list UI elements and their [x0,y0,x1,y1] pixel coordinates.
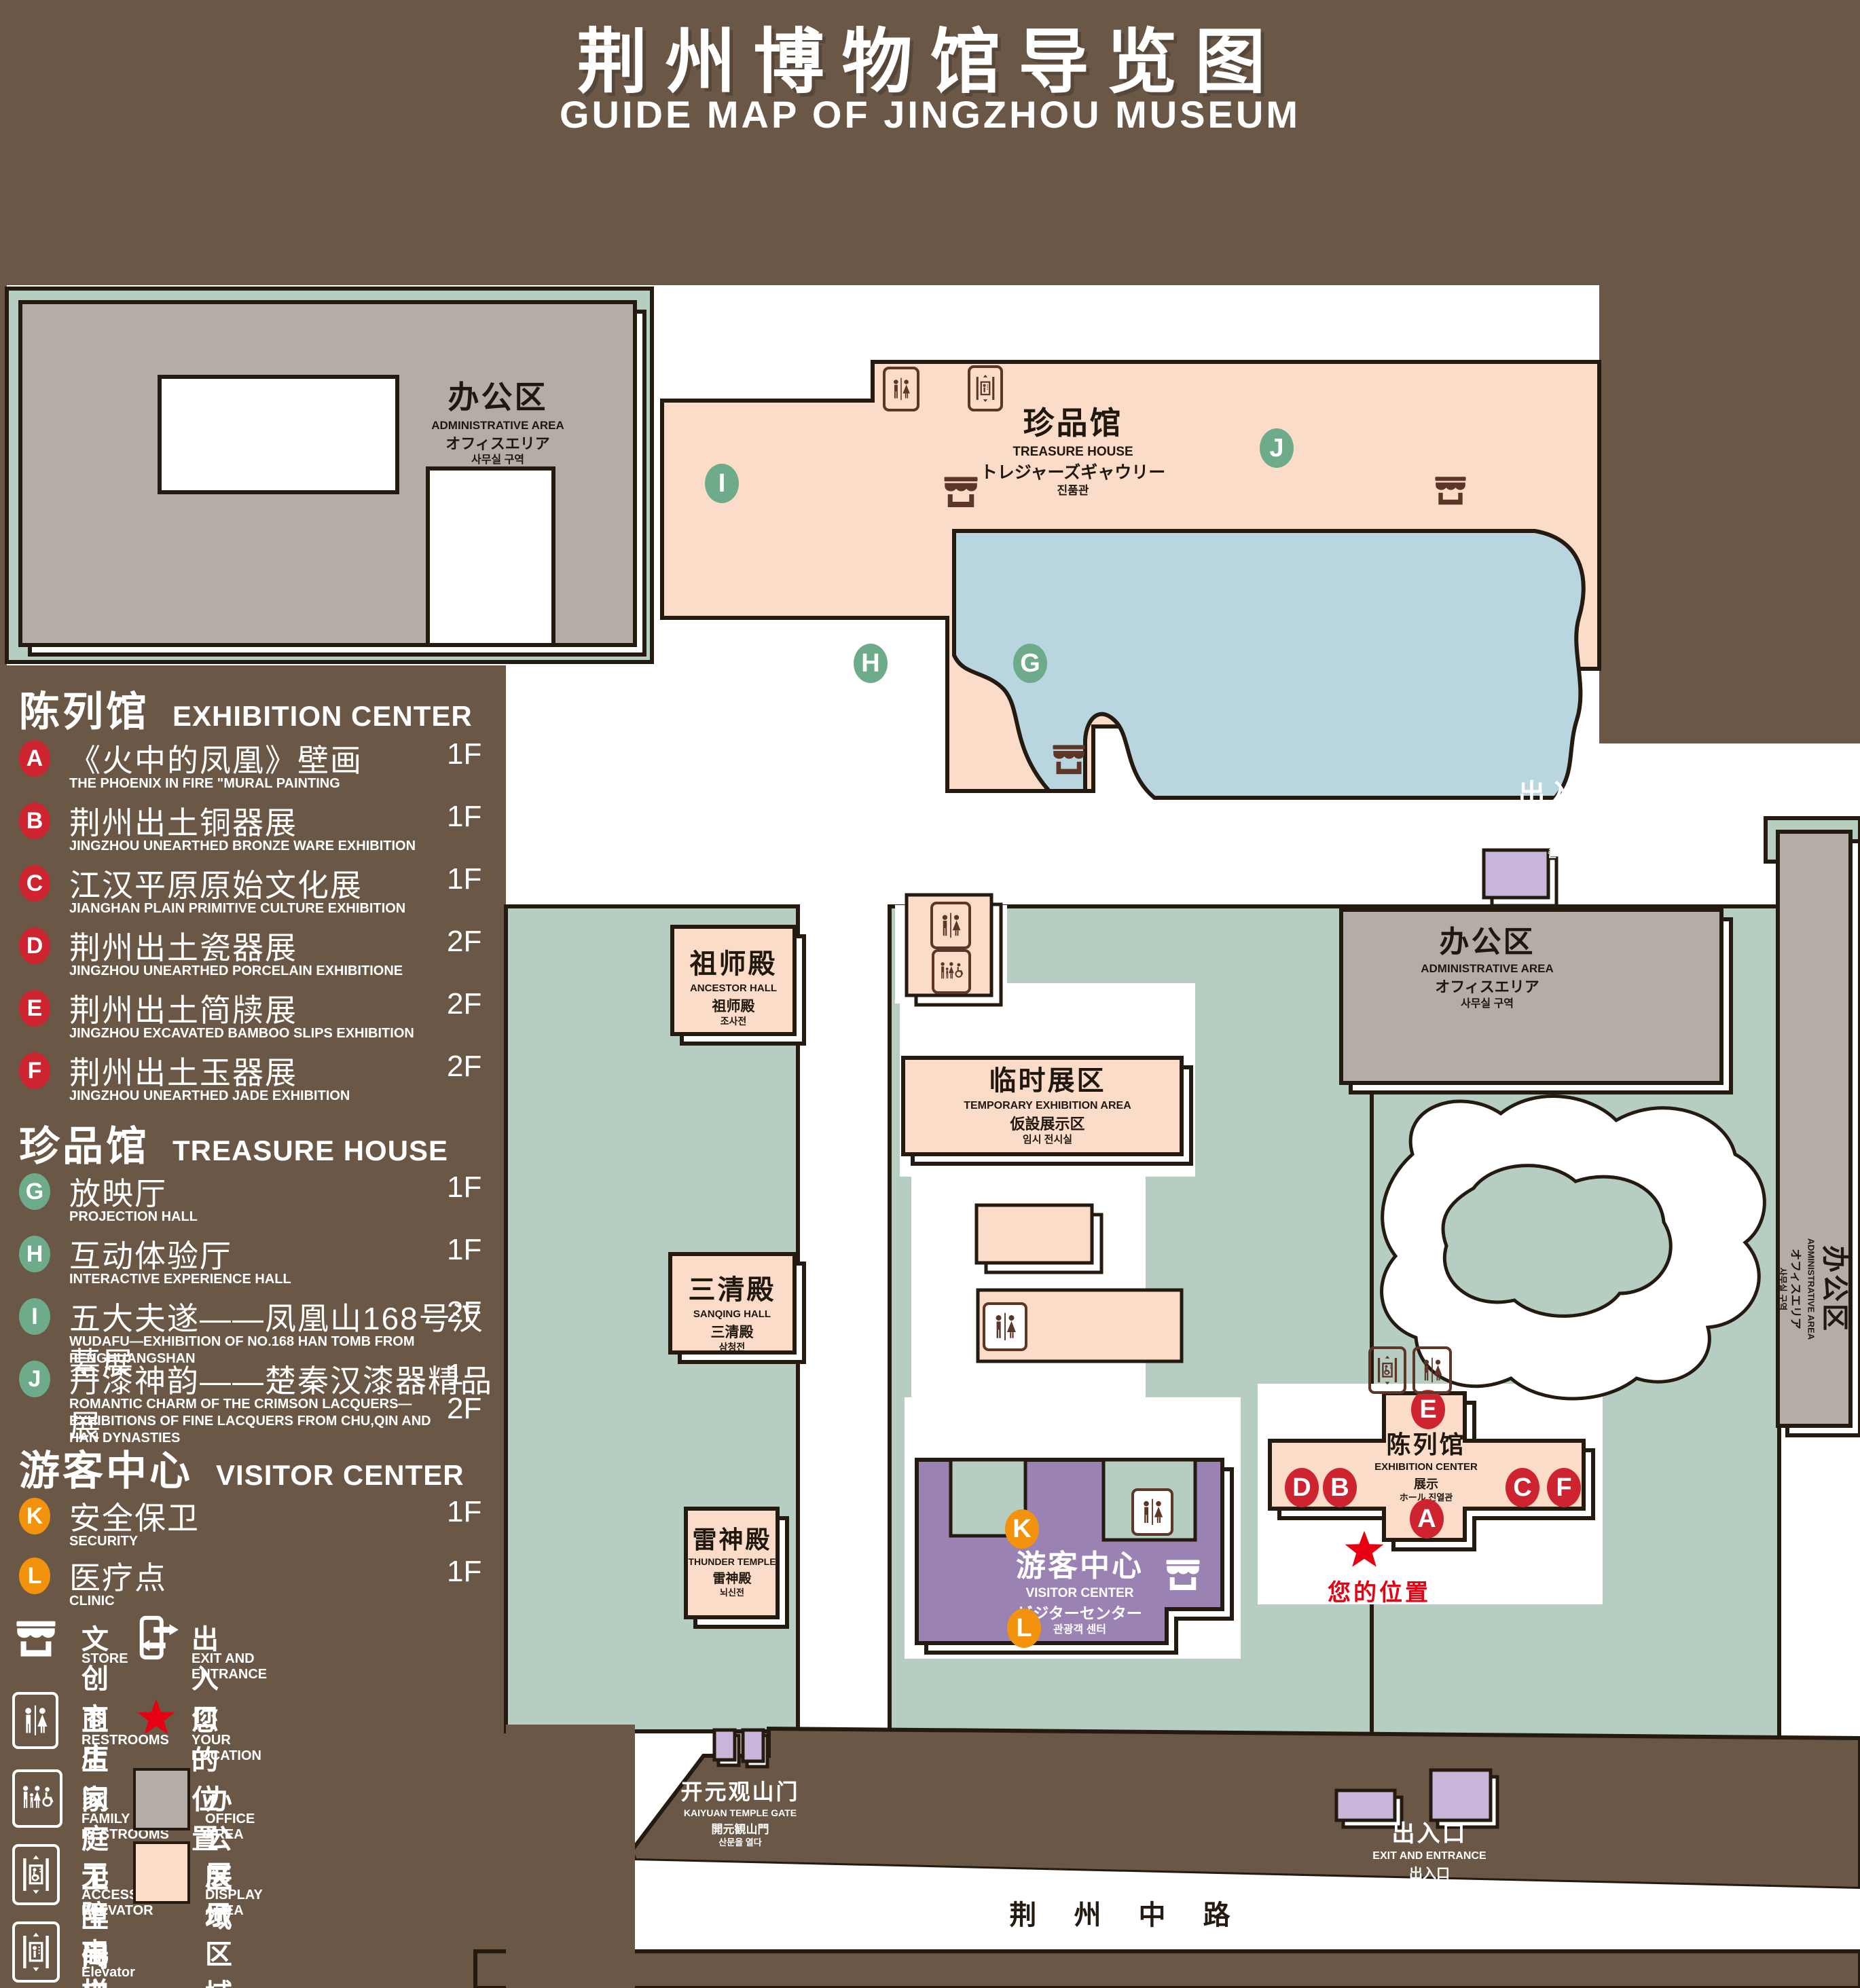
elevator-icon [968,365,1003,411]
exit-door-icon [1491,808,1535,850]
item-C-en: JIANGHAN PLAIN PRIMITIVE CULTURE EXHIBIT… [69,900,450,917]
legend-your-location-en: YOUR LOCATION [192,1733,261,1764]
sanqing-ja: 三清殿 [630,1325,834,1341]
restroom-icon [12,1692,58,1749]
badge-K: K [19,1498,50,1534]
item-B-en: JINGZHOU UNEARTHED BRONZE WARE EXHIBITIO… [69,838,450,855]
list-item-J: J 丹漆神韵——楚秦汉漆器精品展 ROMANTIC CHARM OF THE C… [19,1361,494,1429]
section-visitor-center-en: VISITOR CENTER [216,1459,464,1492]
admin-nw-zh: 办公区 [362,380,634,416]
label-sanqing-hall: 三清殿 SANQING HALL 三清殿 삼청전 [630,1275,834,1353]
item-G-floor: 1F [447,1171,481,1204]
store-icon [941,474,981,511]
item-J-floor: 1-2F [447,1358,494,1426]
marker-D: D [1285,1468,1319,1507]
badge-F: F [19,1052,50,1089]
store-icon [1163,1556,1203,1594]
item-K-zh: 安全保卫 [69,1494,200,1539]
gate-en: KAIYUAN TEMPLE GATE [635,1808,845,1819]
item-D-zh: 荆州出土瓷器展 [69,923,297,968]
thunder-en: THUNDER TEMPLE [630,1557,834,1568]
label-temporary-exhibition: 临时展区 TEMPORARY EXHIBITION AREA 仮設展示区 임시 … [907,1066,1188,1146]
item-H-zh: 互动体验厅 [69,1232,232,1276]
accessible-elevator-icon [12,1844,60,1905]
badge-D: D [19,927,50,964]
exh-center-zh: 陈列馆 [1324,1431,1528,1458]
item-E-zh: 荆州出土简牍展 [69,986,297,1031]
badge-E: E [19,990,50,1027]
marker-E: E [1411,1390,1445,1429]
list-item-D: D 荆州出土瓷器展 JINGZHOU UNEARTHED PORCELAIN E… [19,927,494,995]
item-H-floor: 1F [447,1233,481,1267]
badge-J: J [19,1361,50,1397]
item-L-zh: 医疗点 [69,1553,167,1598]
sanqing-ko: 삼청전 [630,1342,834,1353]
thunder-zh: 雷神殿 [630,1526,834,1553]
temp-exh-zh: 临时展区 [907,1066,1188,1097]
admin-east-ja: オフィスエリア [1351,979,1623,996]
exit-icon [133,1613,182,1662]
section-treasure-house: 珍品馆 TREASURE HOUSE [19,1113,448,1173]
badge-G: G [19,1173,50,1210]
marker-B: B [1323,1468,1357,1507]
restroom-icon [983,1302,1027,1351]
marker-G: G [1013,644,1047,683]
restroom-icon [1412,1346,1452,1394]
item-A-en: THE PHOENIX IN FIRE "MURAL PAINTING [69,775,450,792]
admin-nw-ja: オフィスエリア [362,436,634,453]
admin-far-east-en: ADMINISTRATIVE AREA [1806,1119,1816,1458]
thunder-ja: 雷神殿 [630,1572,834,1586]
label-thunder-temple: 雷神殿 THUNDER TEMPLE 雷神殿 뇌신전 [630,1526,834,1598]
thunder-ko: 뇌신전 [630,1588,834,1598]
admin-east-en: ADMINISTRATIVE AREA [1351,962,1623,975]
badge-B: B [19,803,50,839]
item-F-en: JINGZHOU UNEARTHED JADE EXHIBITION [69,1088,450,1105]
admin-east-ko: 사무실 구역 [1351,998,1623,1010]
marker-H: H [854,644,888,683]
badge-C: C [19,865,50,902]
item-B-floor: 1F [447,800,481,834]
family-restroom-icon [932,949,971,994]
badge-I: I [19,1298,50,1335]
gate-zh: 开元观山门 [635,1780,845,1805]
visitor-ja: ビジターセンター [944,1605,1216,1623]
exit-east-ko: 출입구 [1460,849,1664,860]
marker-F: F [1547,1468,1581,1507]
exit-east-en: EXIT AND ENTRANCE [1460,813,1664,826]
accessible-elevator-icon [1368,1346,1406,1394]
item-G-zh: 放映厅 [69,1169,167,1214]
legend-office-area-en: OFFICE AREA [205,1811,255,1843]
label-ancestor-hall: 祖师殿 ANCESTOR HALL 祖师殿 조사전 [632,949,835,1027]
list-item-C: C 江汉平原原始文化展 JIANGHAN PLAIN PRIMITIVE CUL… [19,865,494,933]
item-E-en: JINGZHOU EXCAVATED BAMBOO SLIPS EXHIBITI… [69,1025,450,1042]
ancestor-ja: 祖师殿 [632,999,835,1015]
item-A-floor: 1F [447,737,481,771]
item-D-floor: 2F [447,925,481,959]
section-treasure-house-zh: 珍品馆 [19,1113,149,1173]
marker-I: I [705,464,739,503]
visitor-ko: 관광객 센터 [944,1624,1216,1636]
treasure-en: TREASURE HOUSE [937,445,1209,459]
office-area-swatch [133,1768,190,1830]
your-location-star-icon [1343,1529,1385,1571]
section-exhibition-center-en: EXHIBITION CENTER [172,700,473,733]
sanqing-zh: 三清殿 [630,1275,834,1306]
item-H-en: INTERACTIVE EXPERIENCE HALL [69,1271,450,1288]
marker-J: J [1260,428,1294,468]
list-item-E: E 荆州出土简牍展 JINGZHOU EXCAVATED BAMBOO SLIP… [19,990,494,1058]
restroom-icon [930,902,971,949]
label-exit-east: 出入口 EXIT AND ENTRANCE 出入口 출입구 [1460,779,1664,860]
restroom-icon [883,367,919,411]
marker-L: L [1007,1608,1041,1648]
temp-exh-en: TEMPORARY EXHIBITION AREA [907,1100,1188,1112]
list-item-G: G 放映厅 PROJECTION HALL 1F [19,1173,494,1241]
legend-exit-en: EXIT AND ENTRANCE [192,1651,267,1682]
gate-ja: 開元観山門 [635,1823,845,1836]
restroom-icon [1131,1488,1173,1536]
exit-south-ko: 출입구 [1328,1883,1531,1894]
ancestor-zh: 祖师殿 [632,949,835,980]
admin-far-east-zh: 办公区 [1819,1119,1850,1458]
list-item-I: I 五大夫遂——凤凰山168号汉墓展 WUDAFU—EXHIBITION OF … [19,1298,494,1366]
list-item-B: B 荆州出土铜器展 JINGZHOU UNEARTHED BRONZE WARE… [19,803,494,870]
badge-H: H [19,1236,50,1272]
list-item-L: L 医疗点 CLINIC 1F [19,1558,494,1625]
item-L-floor: 1F [447,1555,481,1589]
label-admin-area-east: 办公区 ADMINISTRATIVE AREA オフィスエリア 사무실 구역 [1351,925,1623,1010]
family-restroom-icon [12,1769,62,1828]
sanqing-en: SANQING HALL [630,1309,834,1321]
legend-elevator-en: Elevator [81,1965,135,1981]
marker-K: K [1005,1509,1039,1549]
item-E-floor: 2F [447,987,481,1021]
admin-far-east-ko: 사무실 구역 [1777,1119,1787,1458]
item-D-en: JINGZHOU UNEARTHED PORCELAIN EXHIBITIONE [69,963,450,980]
location-star-icon [136,1697,177,1738]
page-subtitle: GUIDE MAP OF JINGZHOU MUSEUM [0,92,1860,136]
admin-east-zh: 办公区 [1351,925,1623,959]
exit-east-ja: 出入口 [1460,830,1664,847]
temp-exh-ko: 임시 전시실 [907,1135,1188,1146]
exit-east-zh: 出入口 [1460,779,1664,810]
temp-exh-ja: 仮設展示区 [907,1116,1188,1133]
section-treasure-house-en: TREASURE HOUSE [172,1135,448,1167]
item-B-zh: 荆州出土铜器展 [69,798,297,843]
item-I-floor: 2F [447,1295,481,1329]
guide-map-poster: 荆州博物馆导览图 GUIDE MAP OF JINGZHOU MUSEUM 办公… [0,0,1860,1988]
admin-nw-ko: 사무실 구역 [362,454,634,466]
item-K-floor: 1F [447,1495,481,1529]
elevator-icon [12,1921,60,1983]
exit-south-en: EXIT AND ENTRANCE [1328,1850,1531,1862]
label-admin-area-nw: 办公区 ADMINISTRATIVE AREA オフィスエリア 사무실 구역 [362,380,634,466]
item-F-zh: 荆州出土玉器展 [69,1048,297,1093]
item-K-en: SECURITY [69,1533,450,1550]
list-item-F: F 荆州出土玉器展 JINGZHOU UNEARTHED JADE EXHIBI… [19,1052,494,1120]
item-C-floor: 1F [447,862,481,896]
road-label: 荆 州 中 路 [937,1893,1317,1932]
section-exhibition-center: 陈列馆 EXHIBITION CENTER [19,679,473,738]
section-visitor-center: 游客中心 VISITOR CENTER [19,1438,464,1497]
item-C-zh: 江汉平原原始文化展 [69,861,363,906]
badge-L: L [19,1558,50,1594]
item-A-zh: 《火中的凤凰》壁画 [69,736,363,781]
store-icon [1049,742,1089,777]
your-location-label: 您的位置 [1328,1574,1431,1607]
marker-A: A [1410,1499,1444,1539]
section-exhibition-center-zh: 陈列馆 [19,679,149,738]
legend-store-en: STORE [81,1651,128,1667]
ancestor-ko: 조사전 [632,1016,835,1027]
admin-nw-en: ADMINISTRATIVE AREA [362,419,634,432]
label-exit-south: 出入口 EXIT AND ENTRANCE 出入口 출입구 [1328,1821,1531,1894]
label-kaiyuan-gate: 开元观山门 KAIYUAN TEMPLE GATE 開元観山門 산문을 열다 [635,1780,845,1847]
display-area-swatch [133,1841,190,1904]
list-item-A: A 《火中的凤凰》壁画 THE PHOENIX IN FIRE "MURAL P… [19,740,494,808]
item-F-floor: 2F [447,1050,481,1084]
item-G-en: PROJECTION HALL [69,1209,450,1226]
page-title: 荆州博物馆导览图 [0,4,1860,107]
badge-A: A [19,740,50,777]
label-admin-area-far-east: 办公区 ADMINISTRATIVE AREA オフィスエリア 사무실 구역 [1777,1119,1850,1458]
legend-display-area-zh: 展示区域 [205,1854,234,1988]
exit-south-zh: 出入口 [1328,1821,1531,1847]
marker-C: C [1506,1468,1539,1507]
section-visitor-center-zh: 游客中心 [19,1438,193,1497]
store-icon [1432,474,1470,508]
list-item-H: H 互动体验厅 INTERACTIVE EXPERIENCE HALL 1F [19,1236,494,1304]
item-L-en: CLINIC [69,1593,450,1610]
exit-south-ja: 出入口 [1328,1866,1531,1881]
ancestor-en: ANCESTOR HALL [632,983,835,995]
admin-far-east-ja: オフィスエリア [1789,1119,1802,1458]
store-icon [12,1617,60,1661]
gate-ko: 산문을 열다 [635,1838,845,1848]
legend-display-area-en: DISPLAY AREA [205,1888,262,1919]
exh-center-en: EXHIBITION CENTER [1324,1462,1528,1473]
